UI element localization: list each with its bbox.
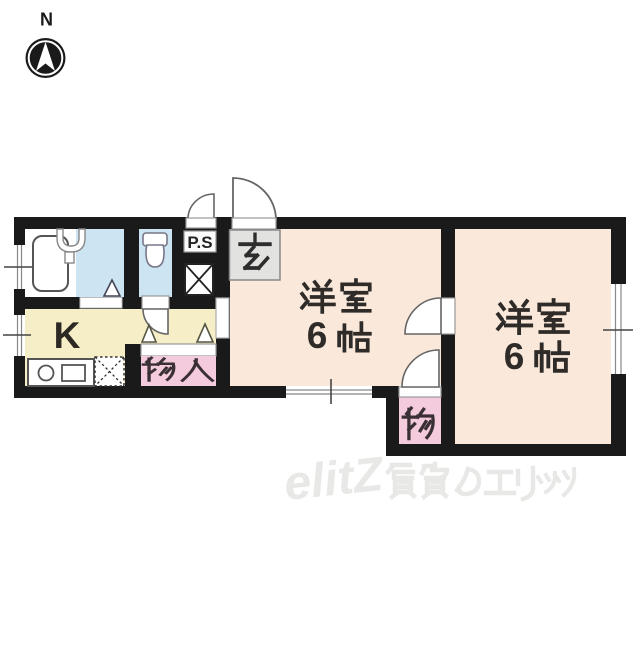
svg-text:P.S: P.S bbox=[187, 233, 212, 252]
svg-text:N: N bbox=[40, 10, 53, 30]
svg-text:K: K bbox=[54, 315, 81, 356]
svg-text:6: 6 bbox=[307, 315, 328, 356]
svg-text:6: 6 bbox=[504, 336, 525, 377]
svg-text:elitZ: elitZ bbox=[282, 448, 387, 511]
